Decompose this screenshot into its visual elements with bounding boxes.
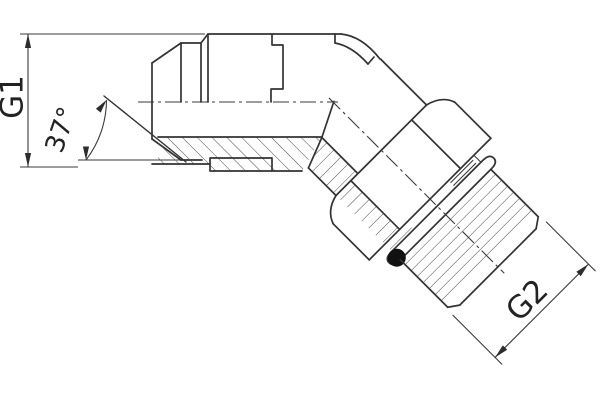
g1-arrow-down-icon — [25, 153, 31, 167]
groove-edge-upper — [474, 155, 481, 162]
elbow-inner-arc — [335, 43, 368, 64]
angle-arrow-top-icon — [96, 100, 107, 113]
nut-body-step — [201, 34, 208, 43]
branch-45deg: G2 — [268, 37, 600, 379]
locknut-corner-arc-top — [427, 89, 455, 117]
section-hatching — [158, 137, 322, 171]
branch-section-hatching — [300, 138, 414, 252]
fitting-drawing-45deg-elbow: G1 37° — [0, 0, 600, 400]
g1-arrow-up-icon — [25, 34, 31, 48]
g2-label: G2 — [499, 272, 555, 328]
technical-drawing-canvas: G1 37° — [0, 0, 600, 400]
elbow-inner-tick2 — [368, 57, 374, 64]
groove-thread-line-1 — [451, 160, 474, 183]
locknut-side-lower — [333, 224, 369, 260]
locknut-side-upper — [455, 102, 491, 138]
stud-tip-chamfer-upper — [531, 217, 543, 229]
angle-label: 37° — [40, 103, 83, 156]
section-lower-half — [152, 137, 322, 171]
locknut-facet-upper — [412, 120, 461, 169]
nut-chamfer-top — [152, 43, 181, 63]
branch-outer-edge — [381, 59, 427, 105]
stud-tip-chamfer-lower — [448, 300, 460, 312]
groove-thread-line-2 — [453, 163, 476, 186]
thread-groove — [448, 155, 481, 188]
fitting-body-horizontal — [138, 34, 380, 171]
g1-label: G1 — [0, 75, 31, 119]
body-internal-step — [271, 34, 283, 102]
